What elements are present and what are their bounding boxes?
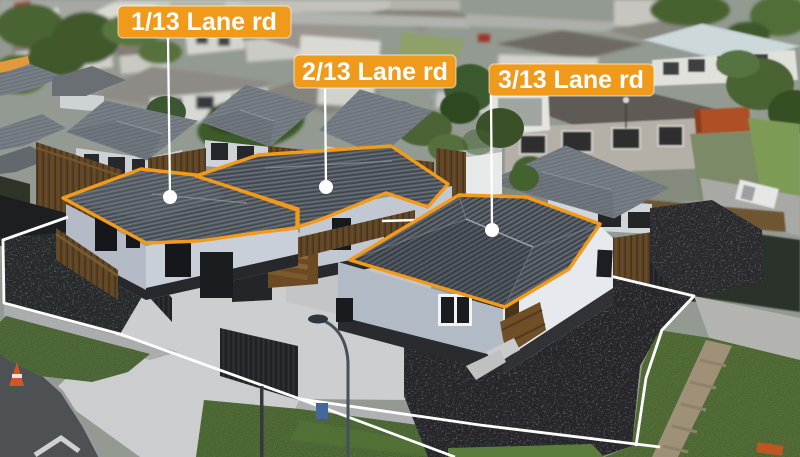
svg-text:1/13 Lane rd: 1/13 Lane rd <box>131 8 277 36</box>
svg-text:2/13 Lane rd: 2/13 Lane rd <box>302 58 448 86</box>
svg-text:3/13 Lane rd: 3/13 Lane rd <box>498 66 644 94</box>
